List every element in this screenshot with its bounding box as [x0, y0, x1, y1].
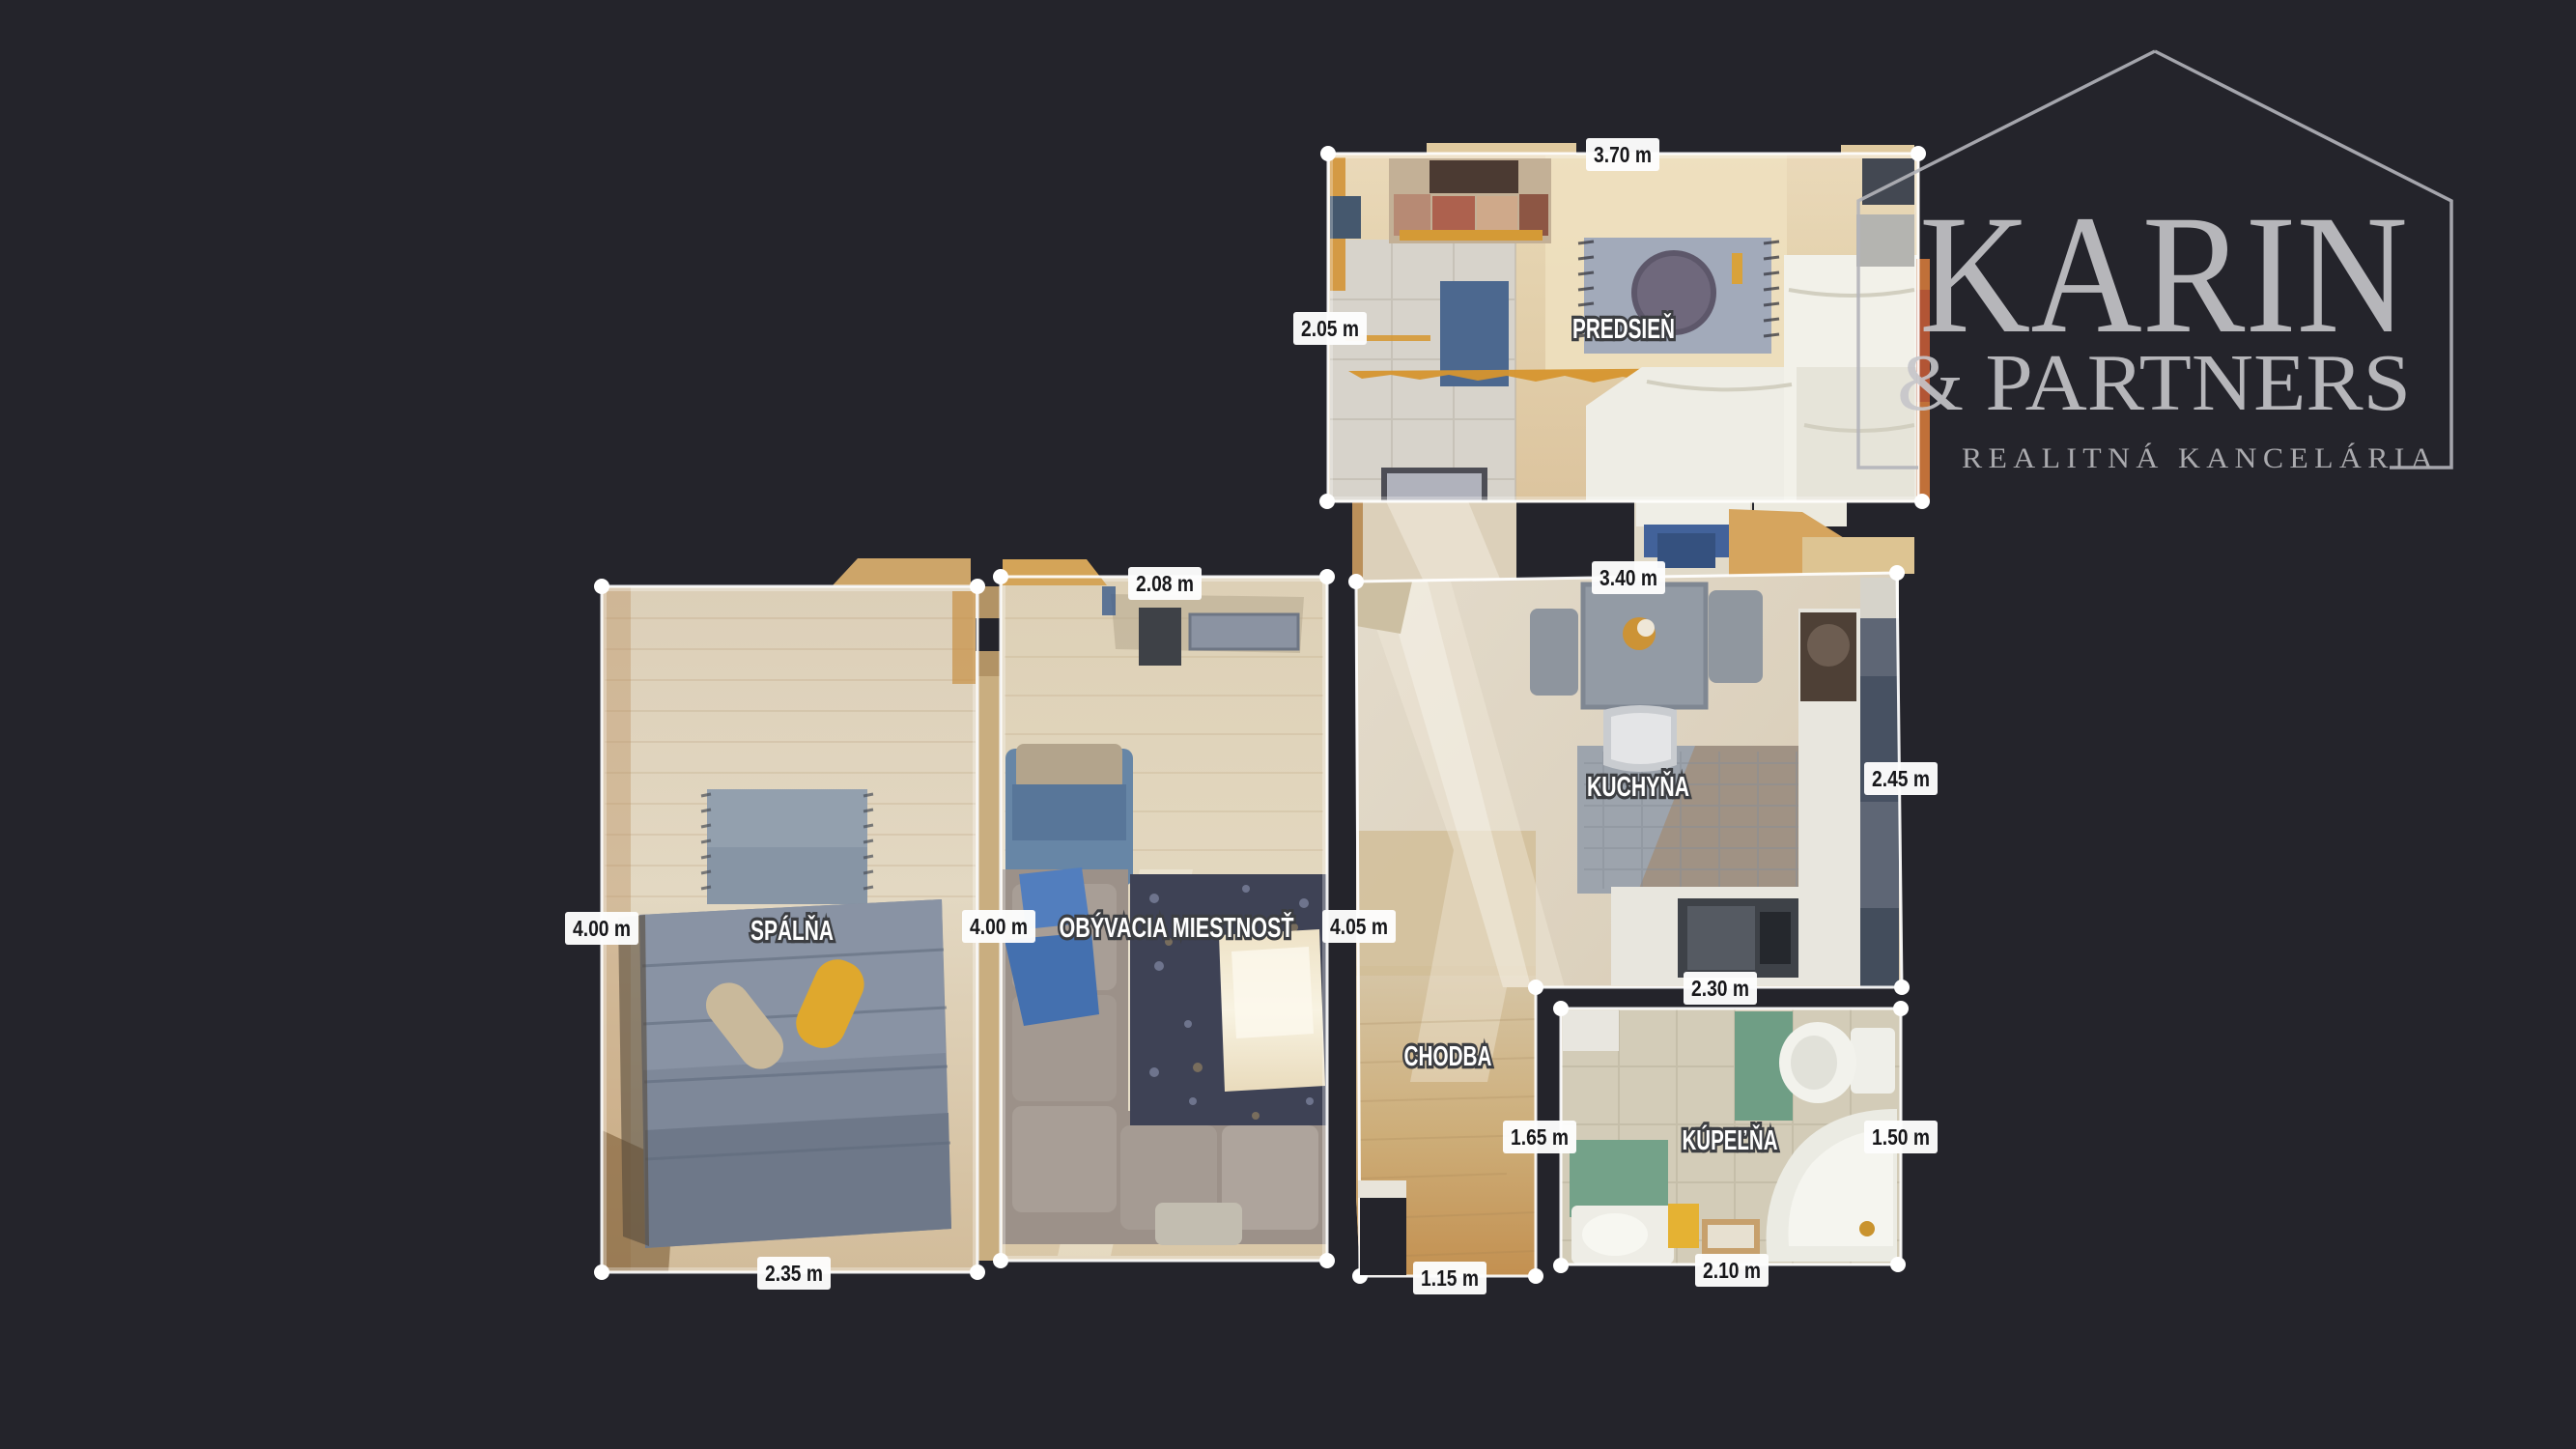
- svg-text:& PARTNERS: & PARTNERS: [1897, 338, 2411, 428]
- svg-text:SPÁLŇA: SPÁLŇA: [750, 914, 834, 947]
- svg-text:KUCHYŇA: KUCHYŇA: [1587, 770, 1689, 803]
- svg-text:3.70 m: 3.70 m: [1594, 142, 1652, 167]
- svg-text:4.00 m: 4.00 m: [573, 916, 631, 941]
- svg-text:2.05 m: 2.05 m: [1301, 316, 1359, 341]
- svg-text:CHODBA: CHODBA: [1404, 1041, 1492, 1072]
- svg-text:4.05 m: 4.05 m: [1330, 914, 1388, 939]
- svg-text:PREDSIEŇ: PREDSIEŇ: [1572, 312, 1675, 345]
- svg-text:4.00 m: 4.00 m: [970, 914, 1028, 939]
- svg-text:KÚPEĽŇA: KÚPEĽŇA: [1683, 1123, 1778, 1156]
- svg-text:2.30 m: 2.30 m: [1691, 976, 1749, 1001]
- svg-text:1.65 m: 1.65 m: [1511, 1124, 1569, 1150]
- svg-text:3.40 m: 3.40 m: [1599, 565, 1657, 590]
- svg-text:2.08 m: 2.08 m: [1136, 571, 1194, 596]
- svg-text:2.10 m: 2.10 m: [1703, 1258, 1761, 1283]
- svg-text:1.15 m: 1.15 m: [1421, 1265, 1479, 1291]
- svg-text:2.45 m: 2.45 m: [1872, 766, 1930, 791]
- svg-text:2.35 m: 2.35 m: [765, 1261, 823, 1286]
- svg-text:1.50 m: 1.50 m: [1872, 1124, 1930, 1150]
- svg-text:REALITNÁ KANCELÁRIA: REALITNÁ KANCELÁRIA: [1962, 442, 2439, 474]
- svg-text:OBÝVACIA MIESTNOSŤ: OBÝVACIA MIESTNOSŤ: [1060, 911, 1294, 944]
